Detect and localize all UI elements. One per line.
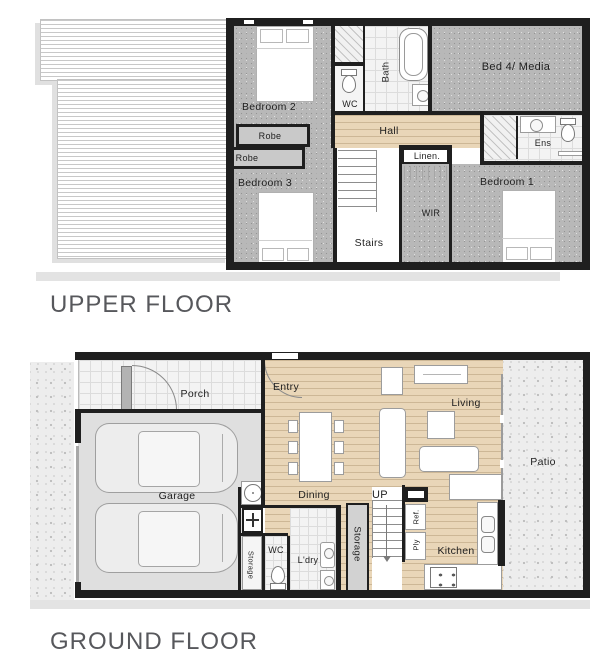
water-heater-dot bbox=[252, 492, 254, 494]
wall-segment bbox=[240, 505, 336, 508]
door-opening bbox=[272, 353, 298, 359]
label-patio: Patio bbox=[530, 456, 555, 468]
label-living: Living bbox=[451, 397, 480, 409]
wall-segment bbox=[75, 409, 81, 443]
label-storage-left: Storage bbox=[247, 551, 256, 579]
label-porch: Porch bbox=[181, 388, 210, 400]
pillow-icon bbox=[262, 248, 284, 261]
tv-unit-icon bbox=[414, 365, 468, 384]
wall-segment bbox=[449, 145, 452, 262]
bed-fold-line bbox=[258, 240, 312, 241]
upper-floor-title: UPPER FLOOR bbox=[50, 291, 233, 319]
car-windshield-line bbox=[222, 514, 223, 562]
chair-icon bbox=[334, 441, 344, 454]
pillow-icon bbox=[286, 29, 309, 43]
label-kitchen: Kitchen bbox=[437, 545, 474, 557]
wall-segment bbox=[226, 18, 234, 270]
label-bedroom2: Bedroom 2 bbox=[242, 101, 296, 113]
car-icon bbox=[95, 423, 238, 493]
coffee-table-icon bbox=[427, 411, 455, 439]
door-gap bbox=[500, 460, 504, 468]
label-garage: Garage bbox=[159, 490, 196, 502]
pillow-icon bbox=[506, 247, 528, 260]
roof-deck-lower bbox=[57, 79, 230, 259]
wall-segment bbox=[583, 352, 590, 598]
chair-icon bbox=[334, 420, 344, 433]
kitchen-island-icon bbox=[449, 474, 502, 500]
label-bedroom1: Bedroom 1 bbox=[480, 176, 534, 188]
sliding-door-icon bbox=[501, 374, 503, 500]
car-windshield-line bbox=[222, 434, 223, 482]
wall-segment bbox=[75, 590, 590, 598]
room-hall-floor bbox=[335, 115, 480, 148]
basin-icon bbox=[530, 119, 543, 132]
cabinet-icon bbox=[381, 367, 403, 395]
stairs-direction-line bbox=[386, 505, 387, 557]
pillow-icon bbox=[260, 29, 283, 43]
bed-fold-line bbox=[502, 238, 554, 239]
toilet-icon bbox=[561, 124, 575, 142]
wall-segment bbox=[480, 115, 484, 165]
stove-icon bbox=[430, 567, 457, 588]
sink-icon bbox=[481, 536, 495, 553]
plan-shadow bbox=[30, 600, 590, 609]
wall-segment bbox=[261, 360, 265, 507]
washer-door-icon bbox=[324, 576, 334, 586]
plus-glyph bbox=[246, 519, 259, 521]
sink-icon bbox=[481, 516, 495, 533]
roof-deck-upper bbox=[40, 19, 230, 81]
stairs-icon bbox=[372, 500, 404, 558]
label-wir: WIR bbox=[422, 208, 440, 218]
laundry-sink-icon bbox=[320, 542, 335, 568]
sofa-icon bbox=[419, 446, 479, 472]
towel-rail-icon bbox=[558, 151, 584, 156]
bathtub-icon bbox=[399, 28, 428, 81]
wall-segment bbox=[498, 500, 505, 566]
wall-segment bbox=[399, 145, 452, 148]
arrow-down-icon bbox=[383, 556, 391, 562]
label-linen: Linen. bbox=[414, 151, 440, 161]
sofa-icon bbox=[379, 408, 406, 478]
tv-unit-line bbox=[423, 374, 461, 375]
window-gap bbox=[303, 20, 313, 24]
car-cabin bbox=[138, 511, 199, 566]
chair-icon bbox=[288, 462, 298, 475]
wall-segment bbox=[75, 352, 590, 360]
chair-icon bbox=[288, 420, 298, 433]
ground-floor-title: GROUND FLOOR bbox=[50, 628, 258, 656]
washer-icon bbox=[320, 570, 335, 590]
window-gap bbox=[244, 20, 254, 24]
kitchen-bench-icon bbox=[477, 502, 498, 566]
chair-icon bbox=[334, 462, 344, 475]
wall-segment bbox=[333, 148, 337, 262]
shower-icon bbox=[333, 26, 365, 64]
label-bath: Bath bbox=[381, 62, 392, 83]
plan-shadow bbox=[36, 272, 560, 281]
label-stairs: Stairs bbox=[355, 237, 384, 249]
wall-segment bbox=[238, 487, 241, 590]
wall-segment bbox=[399, 145, 402, 262]
wall-segment bbox=[226, 262, 590, 270]
wir-shelves-icon bbox=[404, 166, 447, 180]
wall-segment bbox=[226, 18, 590, 26]
label-robe3: Robe bbox=[236, 153, 259, 163]
garage-door-icon bbox=[76, 446, 79, 584]
label-bed4-media: Bed 4/ Media bbox=[482, 61, 550, 73]
wall-segment bbox=[582, 18, 590, 270]
pillow-icon bbox=[530, 247, 552, 260]
label-wc-ground: WC bbox=[268, 545, 284, 555]
wall-segment bbox=[287, 536, 290, 592]
bed-fold-line bbox=[256, 48, 312, 49]
label-entry: Entry bbox=[273, 381, 299, 393]
basin-icon bbox=[324, 548, 334, 559]
wall-segment bbox=[331, 24, 335, 148]
toilet-icon bbox=[270, 583, 286, 590]
storage-closet-box bbox=[242, 508, 263, 533]
driveway-area bbox=[30, 362, 74, 608]
wall-segment bbox=[428, 26, 432, 114]
car-icon bbox=[95, 503, 238, 573]
wall-segment bbox=[75, 582, 81, 598]
door-leaf-icon bbox=[121, 366, 132, 410]
chair-icon bbox=[288, 441, 298, 454]
label-wc-upper: WC bbox=[342, 99, 358, 109]
label-robe2: Robe bbox=[259, 131, 282, 141]
label-ens: Ens bbox=[535, 138, 551, 148]
toilet-icon bbox=[342, 75, 356, 93]
wall-segment bbox=[402, 485, 405, 562]
wall-segment bbox=[76, 409, 262, 413]
door-gap bbox=[500, 415, 504, 423]
car-cabin bbox=[138, 431, 199, 486]
stairs-icon bbox=[338, 150, 377, 212]
label-laundry: L'dry bbox=[298, 555, 319, 565]
shower-icon bbox=[484, 116, 518, 159]
dining-table-icon bbox=[299, 412, 332, 482]
wall-segment bbox=[480, 161, 582, 165]
label-fridge: Ref. bbox=[412, 510, 421, 525]
label-storage-mid: Storage bbox=[352, 526, 363, 561]
room-patio-floor bbox=[503, 360, 583, 590]
label-pantry: Ply bbox=[412, 539, 421, 550]
label-up: UP bbox=[372, 489, 388, 501]
toilet-icon bbox=[271, 566, 285, 584]
pillow-icon bbox=[287, 248, 309, 261]
water-heater-icon bbox=[244, 484, 262, 502]
fridge-niche-box bbox=[404, 487, 428, 502]
label-dining: Dining bbox=[298, 489, 330, 501]
wall-segment bbox=[331, 111, 590, 115]
wall-segment bbox=[262, 536, 265, 592]
wall-segment bbox=[336, 505, 341, 592]
floor-plan-sheet: Bedroom 2 Robe Robe Bedroom 3 WC Bath Be… bbox=[0, 0, 604, 665]
bathtub-inner bbox=[404, 33, 423, 76]
label-hall: Hall bbox=[379, 125, 398, 137]
label-bedroom3: Bedroom 3 bbox=[238, 177, 292, 189]
